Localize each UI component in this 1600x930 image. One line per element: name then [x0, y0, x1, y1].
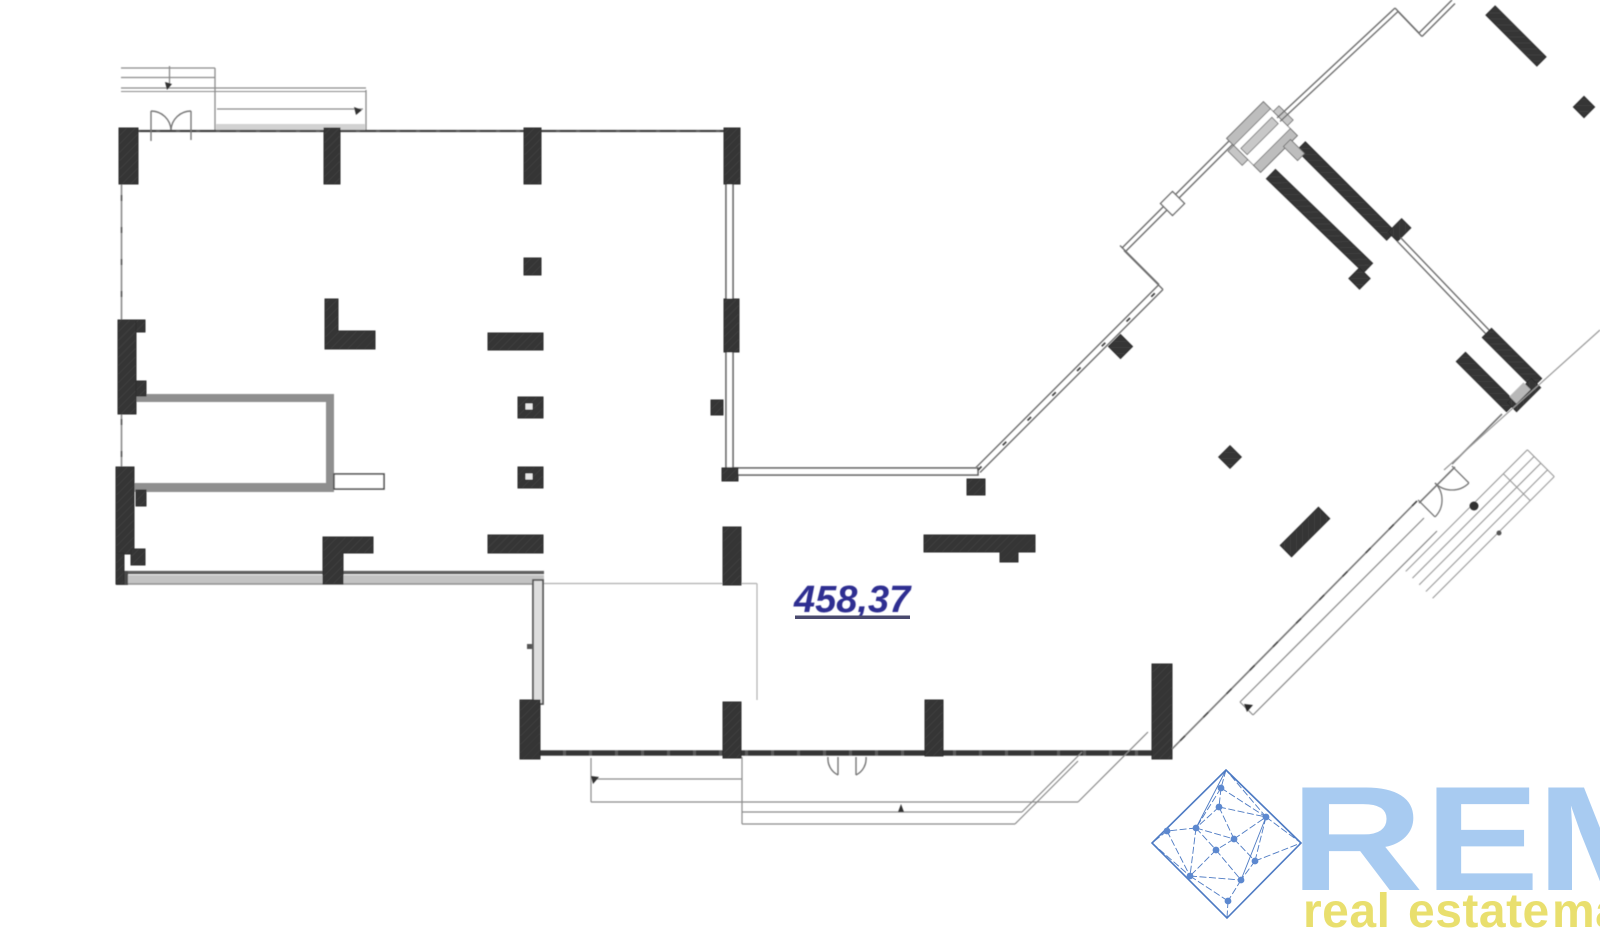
- svg-text:realestatemap: realestatemap: [1303, 885, 1600, 930]
- svg-text:458,37: 458,37: [793, 579, 912, 621]
